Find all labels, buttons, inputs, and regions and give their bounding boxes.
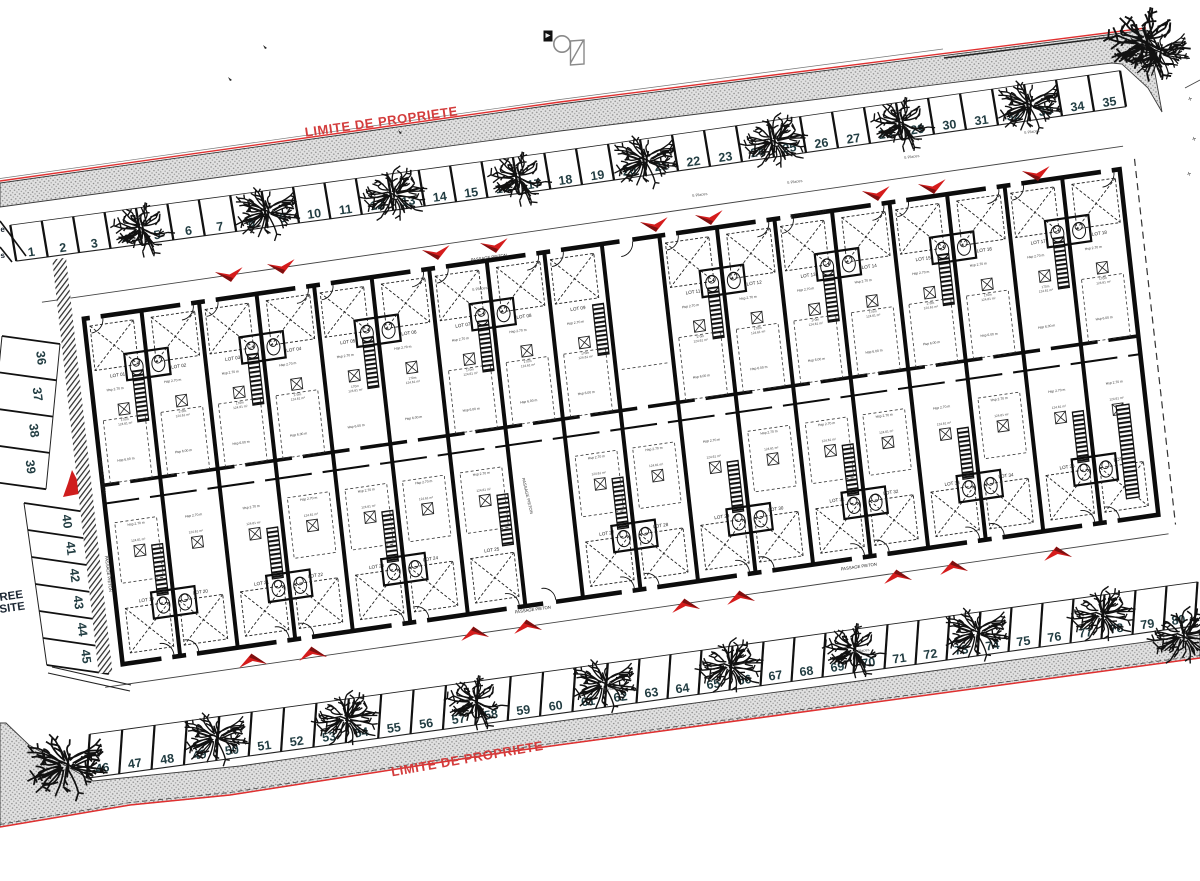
- svg-text:52: 52: [289, 734, 305, 750]
- svg-text:68: 68: [799, 663, 815, 679]
- svg-text:76: 76: [1047, 629, 1063, 645]
- svg-text:36: 36: [33, 350, 49, 366]
- svg-text:71: 71: [892, 651, 908, 667]
- svg-text:40: 40: [59, 514, 75, 530]
- svg-text:44: 44: [74, 622, 90, 638]
- svg-text:43: 43: [71, 595, 87, 611]
- svg-text:31: 31: [974, 112, 990, 128]
- svg-text:26: 26: [814, 135, 830, 151]
- svg-text:22: 22: [686, 154, 702, 170]
- svg-text:10: 10: [306, 206, 322, 222]
- svg-text:23: 23: [718, 149, 734, 165]
- svg-text:34: 34: [1070, 99, 1086, 115]
- svg-text:18: 18: [558, 172, 574, 188]
- svg-text:35: 35: [1102, 94, 1118, 110]
- svg-text:27: 27: [846, 131, 862, 147]
- svg-text:14: 14: [432, 189, 448, 205]
- svg-text:64: 64: [675, 681, 691, 697]
- svg-text:45: 45: [78, 649, 94, 665]
- svg-text:37: 37: [30, 387, 46, 403]
- svg-text:67: 67: [768, 668, 784, 684]
- svg-text:51: 51: [256, 738, 272, 754]
- svg-text:55: 55: [386, 720, 402, 736]
- svg-text:41: 41: [63, 541, 79, 557]
- svg-text:11: 11: [338, 202, 353, 218]
- svg-text:47: 47: [127, 756, 143, 772]
- svg-text:42: 42: [67, 568, 83, 584]
- svg-text:72: 72: [923, 646, 939, 662]
- svg-text:56: 56: [418, 716, 434, 732]
- svg-text:60: 60: [548, 698, 564, 714]
- svg-text:38: 38: [26, 423, 42, 439]
- svg-text:15: 15: [463, 185, 479, 201]
- svg-text:19: 19: [590, 168, 606, 184]
- svg-text:39: 39: [23, 459, 39, 475]
- svg-text:59: 59: [515, 702, 531, 718]
- svg-text:75: 75: [1016, 634, 1032, 650]
- svg-text:48: 48: [159, 751, 175, 767]
- svg-text:30: 30: [942, 117, 958, 133]
- svg-text:79: 79: [1140, 616, 1156, 632]
- svg-text:63: 63: [644, 685, 660, 701]
